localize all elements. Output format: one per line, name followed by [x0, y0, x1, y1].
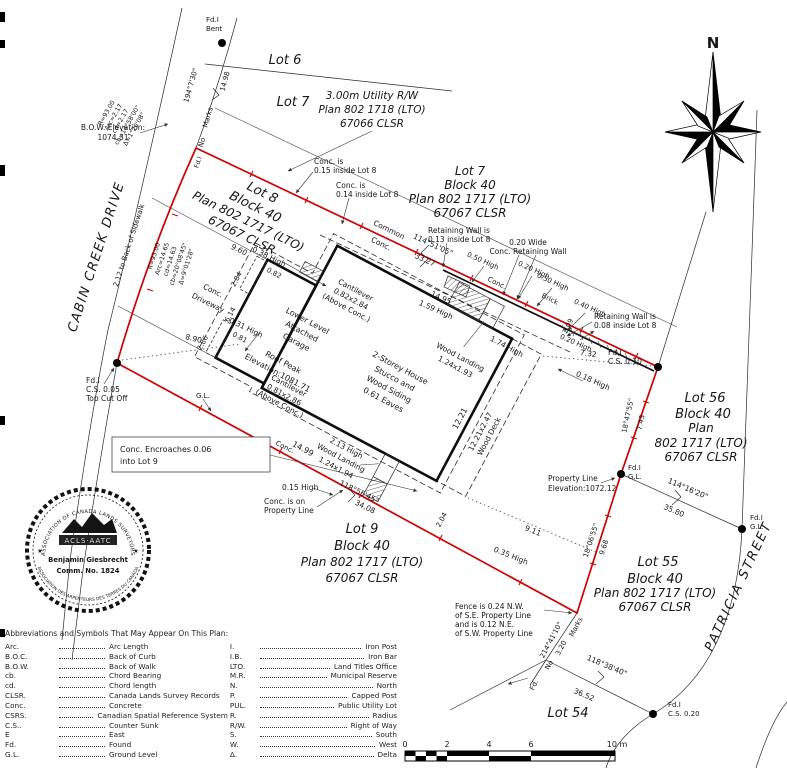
abbr-key: W.: [230, 740, 258, 749]
label-h-174: 1.74 High: [489, 334, 526, 359]
label-fence-3: and is 0.12 N.E.: [455, 620, 514, 629]
label-marks-sw: Marks: [568, 616, 585, 639]
abbr-row: PUL.Public Utility Lot: [230, 700, 397, 710]
label-lot9-4: 67067 CLSR: [325, 571, 398, 585]
label-conc014-2: 0.14 inside Lot 8: [336, 190, 399, 199]
abbreviations-left-column: Arc.Arc Length B.O.C.Back of Curb B.O.W.…: [5, 641, 228, 759]
abbr-key: I.B.: [230, 652, 258, 661]
stamp-org: ACLS·AATC: [64, 537, 111, 545]
abbr-row: R.Radius: [230, 710, 397, 720]
scan-artifact: [0, 12, 5, 22]
label-fdi-p5-2: C.S. 0.05: [86, 385, 120, 394]
abbr-row: Conc.Concrete: [5, 700, 228, 710]
surveyor-stamp: ASSOCIATION OF CANADA LANDS SURVEYORS AS…: [27, 489, 149, 611]
label-fdi-p2-2: C.S. 0.10: [608, 357, 642, 366]
dot-leader: [260, 658, 364, 659]
label-concpl-1: Conc. is on: [264, 497, 305, 506]
label-marks-top: Marks: [201, 106, 215, 129]
scale-tick-0: 0: [402, 740, 407, 749]
abbr-def: Back of Walk: [109, 662, 156, 671]
label-fdi-p5-3: Top Cut Off: [85, 394, 128, 403]
abbr-row: N.North: [230, 680, 397, 690]
label-fdi-p1: Fd.I: [193, 156, 203, 169]
label-encroach-2: into Lot 9: [120, 457, 158, 466]
scale-bar: 0 2 4 6 10 m: [402, 740, 627, 761]
abbr-def: Canada Lands Survey Records: [109, 691, 220, 700]
dot-leader: [260, 717, 369, 718]
scale-tick-6: 6: [528, 740, 533, 749]
scan-artifact: [0, 165, 5, 176]
label-fd-sw: Fd.: [528, 678, 540, 691]
abbr-row: I.Iron Post: [230, 641, 397, 651]
abbr-key: C.S..: [5, 721, 57, 730]
label-concpl-2: Property Line: [264, 506, 314, 515]
scale-tick-2: 2: [444, 740, 449, 749]
abbr-row: S.South: [230, 730, 397, 740]
dot-leader: [59, 677, 105, 678]
abbr-key: B.O.C.: [5, 652, 57, 661]
abbr-key: E: [5, 730, 57, 739]
label-rww-1: 0.20 Wide: [509, 238, 547, 247]
abbr-row: cd.Chord length: [5, 680, 228, 690]
label-conc-s: Conc.: [274, 439, 295, 455]
abbr-row: G.L.Ground Level: [5, 749, 228, 759]
abbr-row: M.R.Municipal Reserve: [230, 671, 397, 681]
abbreviations-right-column: I.Iron Post I.B.Iron Bar LTO.Land Titles…: [230, 641, 397, 759]
scan-artifact: [0, 416, 5, 425]
abbr-row: Arc.Arc Length: [5, 641, 228, 651]
plan-labels: Fd.I Bent Lot 6 Lot 7 3.00m Utility R/W …: [65, 16, 775, 721]
label-lot7-4: 67067 CLSR: [433, 206, 506, 220]
label-dist-e1: 7.43: [636, 414, 647, 431]
abbr-def: Canadian Spatial Reference System: [97, 711, 227, 720]
abbr-row: B.O.W.Back of Walk: [5, 661, 228, 671]
label-fdi-bent-2: Bent: [206, 25, 223, 33]
label-lot55-2: Block 40: [627, 572, 683, 587]
abbr-key: Arc.: [5, 642, 57, 651]
dot-leader: [260, 746, 375, 747]
label-fdi-p5-1: Fd.I: [86, 376, 100, 385]
label-dim-082: 0.82: [265, 266, 283, 280]
dot-leader: [260, 687, 373, 688]
abbr-key: R.: [230, 711, 258, 720]
abbr-def: West: [379, 740, 397, 749]
abbr-key: cd.: [5, 681, 57, 690]
abbr-def: Right of Way: [351, 721, 397, 730]
abbr-key: CSRS.: [5, 711, 57, 720]
label-rww-2: Conc. Retaining Wall: [489, 247, 566, 256]
label-brg-e1: 18°47'55": [620, 397, 635, 433]
label-fence-1: Fence is 0.24 N.W.: [455, 602, 524, 611]
label-lot56-1: Lot 56: [685, 391, 726, 406]
abbr-def: Chord Bearing: [109, 671, 161, 680]
house: Cantilever 0.82x2.84 (Above Conc.) Lower…: [172, 188, 553, 537]
dot-leader: [59, 717, 93, 718]
abbr-def: Arc Length: [109, 642, 148, 651]
label-h-018: 0.18 High: [575, 369, 612, 392]
label-lot56-4: 802 1717 (LTO): [654, 436, 747, 450]
label-lot55-1: Lot 55: [638, 555, 679, 570]
abbr-key: M.R.: [230, 671, 258, 680]
abbr-key: Conc.: [5, 701, 57, 710]
scale-tick-10m: 10 m: [607, 740, 628, 749]
stamp-star-right: ★: [133, 548, 139, 555]
dot-leader: [260, 727, 347, 728]
dot-leader: [59, 756, 105, 757]
abbr-def: Back of Curb: [109, 652, 156, 661]
label-fdi-54-2: C.S. 0.20: [668, 710, 700, 718]
label-lot9-2: Block 40: [334, 539, 390, 554]
abbr-row: LTO.Land Titles Office: [230, 661, 397, 671]
abbr-key: I.: [230, 642, 258, 651]
label-rw2-1: Retaining Wall is: [594, 312, 656, 321]
scan-artifact: [0, 629, 5, 637]
abbr-row: CLSR.Canada Lands Survey Records: [5, 690, 228, 700]
label-conc015-2: 0.15 inside Lot 8: [314, 166, 377, 175]
abbr-key: B.O.W.: [5, 662, 57, 671]
label-lot7-nw: Lot 7: [277, 95, 310, 110]
abbr-def: South: [376, 730, 397, 739]
label-gl-south: G.L.: [196, 392, 210, 400]
abbr-key: S.: [230, 730, 258, 739]
abbr-key: LTO.: [230, 662, 258, 671]
label-fdi-p3-2: G.L.: [628, 473, 642, 481]
label-fence-2: of S.E. Property Line: [455, 611, 531, 620]
dot-leader: [260, 668, 330, 669]
abbr-key: R/W.: [230, 721, 258, 730]
label-lot55-3: Plan 802 1717 (LTO): [594, 586, 716, 600]
label-dim-890: 8.90: [184, 332, 203, 345]
abbr-key: G.L.: [5, 750, 57, 759]
abbr-row: cb.Chord Bearing: [5, 671, 228, 681]
abbreviations-legend: Abbreviations and Symbols That May Appea…: [5, 629, 397, 759]
abbreviations-title: Abbreviations and Symbols That May Appea…: [5, 629, 397, 638]
label-lot56-2: Block 40: [675, 407, 731, 422]
survey-plan-page: Cantilever 0.82x2.84 (Above Conc.) Lower…: [0, 0, 787, 768]
abbr-row: Fd.Found: [5, 739, 228, 749]
abbr-def: Land Titles Office: [334, 662, 397, 671]
abbr-key: Δ.: [230, 750, 258, 759]
encroachment-note: Conc. Encroaches 0.06 into Lot 9: [112, 437, 270, 472]
abbr-key: N.: [230, 681, 258, 690]
dot-leader: [59, 668, 105, 669]
abbr-def: North: [377, 681, 397, 690]
label-dist-3580: 35.80: [662, 502, 685, 519]
dot-leader: [260, 756, 374, 757]
label-fdi-p2-1: Fd.I: [608, 348, 622, 357]
abbr-key: Fd.: [5, 740, 57, 749]
label-dim-732: 7.32: [579, 348, 597, 359]
north-arrow: N: [665, 34, 761, 212]
abbr-def: Capped Post: [351, 691, 397, 700]
dot-leader: [260, 697, 348, 698]
label-brg-54: 118°38'40": [586, 653, 629, 678]
abbr-row: EEast: [5, 730, 228, 740]
abbr-row: W.West: [230, 739, 397, 749]
label-dim-204: 2.04: [435, 511, 450, 529]
dot-leader: [59, 697, 105, 698]
label-lot54: Lot 54: [548, 706, 589, 721]
stamp-name: Benjamin Giesbrecht: [48, 556, 128, 564]
dot-leader: [59, 648, 105, 649]
dot-leader: [59, 746, 105, 747]
abbr-row: I.B.Iron Bar: [230, 651, 397, 661]
dot-leader: [260, 677, 327, 678]
label-pl-elev-2: Elevation:1072.12: [548, 484, 617, 493]
abbr-key: CLSR.: [5, 691, 57, 700]
abbr-row: C.S..Counter Sunk: [5, 720, 228, 730]
abbr-def: Delta: [378, 750, 397, 759]
abbr-def: Found: [109, 740, 131, 749]
label-pl-elev-1: Property Line: [548, 474, 598, 483]
label-fdi-p3-1: Fd.I: [628, 464, 641, 472]
label-lot6: Lot 6: [269, 53, 302, 68]
label-fence-4: of S.W. Property Line: [455, 629, 533, 638]
label-h-050b: 0.50 High: [536, 272, 570, 293]
label-lot56-5: 67067 CLSR: [664, 450, 737, 464]
abbr-row: CSRS.Canadian Spatial Reference System: [5, 710, 228, 720]
dot-leader: [59, 727, 105, 728]
label-fdi-bent-1: Fd.I: [206, 16, 219, 24]
label-brg-street-n: 194°7'30": [182, 67, 199, 103]
label-rw1-2: 0.13 inside Lot 8: [428, 235, 491, 244]
label-encroach-1: Conc. Encroaches 0.06: [120, 445, 211, 454]
label-lot9-3: Plan 802 1717 (LTO): [301, 555, 423, 569]
label-north: N: [707, 34, 720, 52]
abbr-row: P.Capped Post: [230, 690, 397, 700]
stamp-star-left: ★: [37, 548, 43, 555]
label-rw1-1: Retaining Wall is: [428, 226, 490, 235]
stamp-commission: Comm. No. 1824: [57, 567, 120, 575]
dot-leader: [59, 658, 105, 659]
dot-leader: [59, 736, 105, 737]
label-dist-3652: 36.52: [572, 686, 595, 703]
label-conc014-1: Conc. is: [336, 181, 366, 190]
label-conc-wall: Conc.: [486, 275, 507, 291]
dot-leader: [59, 707, 105, 708]
abbr-def: Ground Level: [109, 750, 157, 759]
abbr-def: Iron Bar: [368, 652, 397, 661]
abbr-def: Municipal Reserve: [331, 671, 397, 680]
label-lot7-2: Block 40: [444, 178, 496, 192]
label-bow-1: B.O.W. Elevation:: [81, 123, 145, 132]
dot-leader: [260, 648, 361, 649]
dot-leader: [260, 707, 334, 708]
abbr-key: P.: [230, 691, 258, 700]
abbr-def: Public Utility Lot: [338, 701, 397, 710]
label-dist-north: 33.27: [413, 251, 436, 268]
label-lot9-1: Lot 9: [346, 522, 379, 537]
abbr-row: B.O.C.Back of Curb: [5, 651, 228, 661]
label-no-top: No: [197, 137, 207, 148]
label-fdi-54-1: Fd.I: [668, 701, 681, 709]
label-brick: Brick: [540, 292, 560, 307]
dot-leader: [59, 687, 105, 688]
label-dim-284: 2.84: [230, 270, 245, 288]
label-utility-1: 3.00m Utility R/W: [326, 90, 419, 102]
label-conc015-1: Conc. is: [314, 157, 344, 166]
label-bow-2: 1074.31: [97, 133, 128, 142]
label-lot56-3: Plan: [688, 421, 714, 435]
abbr-def: Iron Post: [365, 642, 397, 651]
label-dist-street-n: 14.98: [218, 71, 231, 92]
label-h-015: 0.15 High: [282, 483, 319, 492]
label-cabin-creek-drive: CABIN CREEK DRIVE: [65, 180, 128, 334]
label-dist-320: 3.20: [554, 639, 568, 657]
label-dim-081: 0.81: [231, 331, 249, 345]
abbr-row: Δ.Delta: [230, 749, 397, 759]
label-dim-911: 9.11: [524, 523, 543, 538]
abbr-row: R/W.Right of Way: [230, 720, 397, 730]
abbr-def: Concrete: [109, 701, 142, 710]
abbr-def: Counter Sunk: [109, 721, 159, 730]
abbr-def: East: [109, 730, 125, 739]
label-lot55-4: 67067 CLSR: [618, 600, 691, 614]
scan-artifact: [0, 40, 5, 48]
abbr-def: Chord length: [109, 681, 156, 690]
label-lot7-1: Lot 7: [455, 164, 486, 178]
abbr-def: Radius: [373, 711, 397, 720]
label-utility-2: Plan 802 1718 (LTO): [318, 104, 425, 116]
abbr-key: cb.: [5, 671, 57, 680]
scale-tick-4: 4: [486, 740, 491, 749]
label-common-2: Conc.: [370, 235, 393, 252]
label-lot7-3: Plan 802 1717 (LTO): [409, 192, 531, 206]
label-utility-3: 67066 CLSR: [340, 118, 404, 130]
abbr-key: PUL.: [230, 701, 258, 710]
dot-leader: [260, 736, 372, 737]
label-rw2-2: 0.08 inside Lot 8: [594, 321, 657, 330]
label-h-035: 0.35 High: [492, 545, 529, 567]
